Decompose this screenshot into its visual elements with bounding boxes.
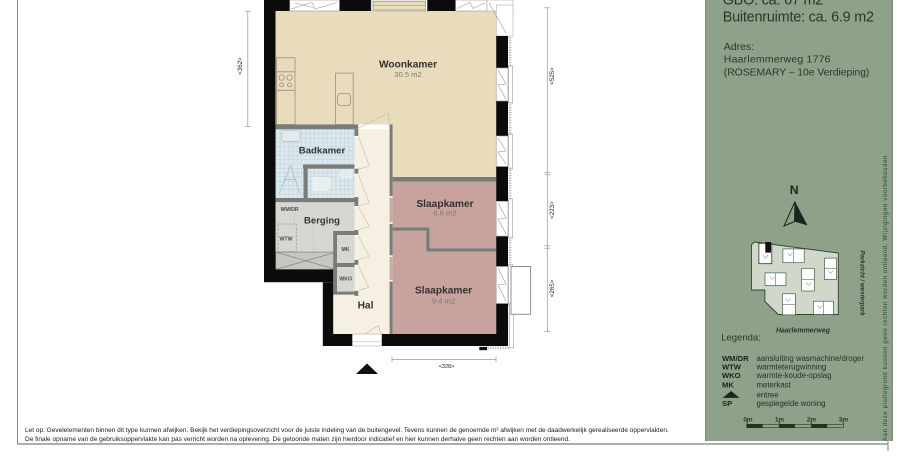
svg-text:GBO: ca. 67 m2: GBO: ca. 67 m2 [723,0,824,9]
svg-text:N: N [790,183,799,197]
svg-text:Hal: Hal [358,301,374,312]
svg-text:SP: SP [722,399,732,408]
svg-text:Badkamer: Badkamer [299,145,346,156]
svg-text:WTW: WTW [722,362,742,371]
svg-text:<265>: <265> [549,279,556,297]
svg-text:warmteterugwinning: warmteterugwinning [756,362,827,371]
svg-text:warmte-koude-opslag: warmte-koude-opslag [756,371,832,380]
svg-text:Haarlemmerweg: Haarlemmerweg [776,328,831,335]
svg-text:MK: MK [342,247,350,253]
svg-text:WKO: WKO [339,277,352,283]
svg-text:Parkzicht / westerpark: Parkzicht / westerpark [859,250,866,316]
svg-text:WKO: WKO [722,371,741,380]
svg-text:0m: 0m [743,417,753,424]
svg-text:Haarlemmerweg 1776: Haarlemmerweg 1776 [724,53,831,65]
svg-text:Berging: Berging [304,216,340,227]
svg-text:Slaapkamer: Slaapkamer [415,286,472,297]
svg-text:WM/DR: WM/DR [281,207,299,213]
svg-text:Let op: Gevelelementen binnen: Let op: Gevelelementen binnen dit type k… [25,427,669,434]
svg-text:gespiegelde woning: gespiegelde woning [757,399,826,408]
svg-text:3m: 3m [839,417,849,424]
svg-text:2m: 2m [807,417,817,424]
svg-text:De finale opname van de gebrui: De finale opname van de gebruiksoppervla… [25,436,570,443]
svg-text:1m: 1m [775,417,785,424]
svg-text:MK: MK [722,380,734,389]
svg-text:meterkast: meterkast [757,380,792,389]
svg-text:Legenda:: Legenda: [721,332,761,343]
svg-text:<362>: <362> [237,57,244,75]
svg-text:<328>: <328> [439,364,455,370]
svg-text:9.4 m2: 9.4 m2 [432,297,455,306]
svg-text:Aan deze plattegrond kunnen ge: Aan deze plattegrond kunnen geen rechten… [883,153,889,441]
svg-text:30.5 m2: 30.5 m2 [394,70,421,79]
svg-text:(ROSEMARY – 10e Verdieping): (ROSEMARY – 10e Verdieping) [724,68,870,79]
svg-text:6.6 m2: 6.6 m2 [433,209,456,218]
svg-text:Adres:: Adres: [724,41,754,53]
svg-text:WTW: WTW [280,236,293,242]
svg-text:Buitenruimte: ca. 6.9 m2: Buitenruimte: ca. 6.9 m2 [723,9,874,25]
svg-text:<525>: <525> [549,67,556,85]
svg-text:<223>: <223> [549,201,556,219]
